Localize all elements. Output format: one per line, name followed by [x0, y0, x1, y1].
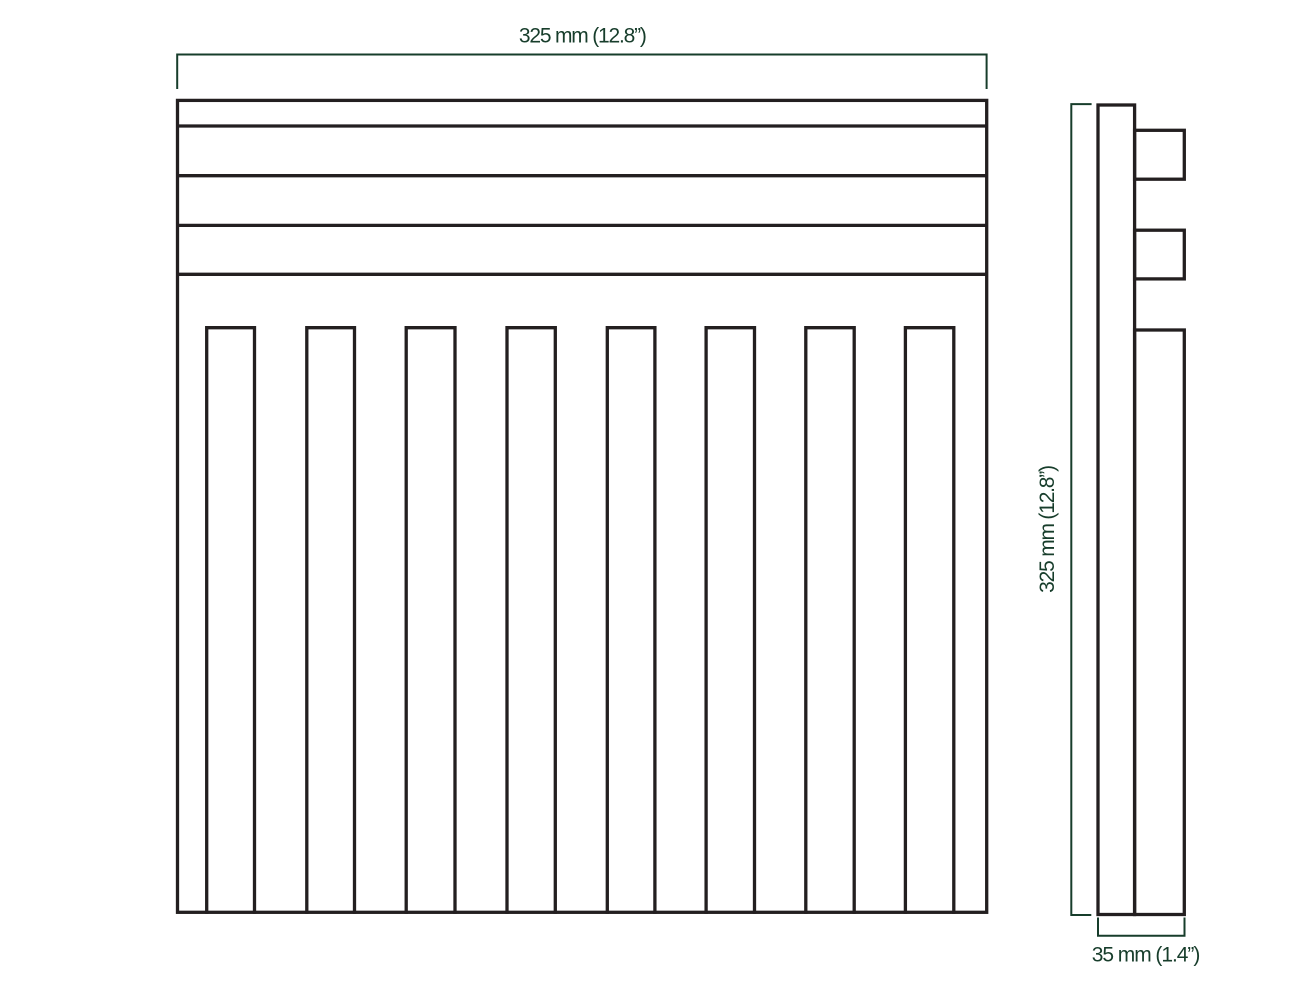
svg-text:325 mm (12.8”): 325 mm (12.8”)	[1036, 466, 1059, 593]
svg-text:325 mm (12.8”): 325 mm (12.8”)	[519, 24, 646, 47]
svg-text:35 mm (1.4”): 35 mm (1.4”)	[1092, 944, 1200, 967]
